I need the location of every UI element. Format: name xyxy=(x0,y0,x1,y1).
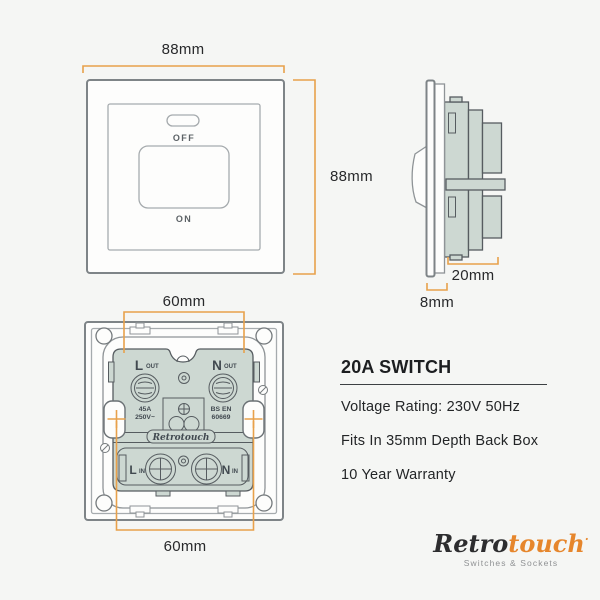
brand-wordmark: Retrotouch· xyxy=(431,527,591,557)
plate-depth-label: 8mm xyxy=(420,294,454,311)
standard-text: BS EN 60669 xyxy=(211,406,232,421)
brand-mark: · xyxy=(585,533,589,546)
svg-text:45A: 45A xyxy=(139,406,152,413)
diagram-canvas: OFF ON 88mm 88mm 20mm 8mm xyxy=(0,0,600,600)
svg-text:N: N xyxy=(222,463,231,477)
side-view: 20mm 8mm xyxy=(412,81,505,312)
width-dimension-bracket xyxy=(83,66,284,73)
front-width-label: 88mm xyxy=(162,41,205,58)
height-dimension-bracket xyxy=(293,80,315,274)
front-view: OFF ON 88mm 88mm xyxy=(83,41,373,274)
front-height-label: 88mm xyxy=(330,168,373,185)
back-top-width-label: 60mm xyxy=(163,293,206,310)
plate-depth-dimension-bracket xyxy=(427,283,447,290)
side-mechanism xyxy=(445,97,506,260)
svg-text:250V~: 250V~ xyxy=(135,414,155,421)
svg-text:IN: IN xyxy=(139,469,145,475)
off-label: OFF xyxy=(173,133,195,143)
svg-text:L: L xyxy=(129,463,136,477)
svg-text:IN: IN xyxy=(232,469,238,475)
on-label: ON xyxy=(176,214,192,224)
svg-text:Retrotouch: Retrotouch xyxy=(152,433,210,443)
svg-text:OUT: OUT xyxy=(146,364,159,370)
brand-stamp: Retrotouch xyxy=(147,430,215,443)
svg-text:N: N xyxy=(212,358,222,373)
svg-text:BS EN: BS EN xyxy=(211,406,232,413)
indicator-window xyxy=(167,115,199,126)
rocker-switch xyxy=(139,146,229,208)
depth-label: 20mm xyxy=(452,267,495,284)
back-view: L OUT N OUT 45A 250V~ BS EN 60669 xyxy=(85,293,283,555)
side-backplate xyxy=(435,84,445,273)
product-dimension-sheet: OFF ON 88mm 88mm 20mm 8mm xyxy=(0,0,600,600)
svg-text:60669: 60669 xyxy=(212,414,231,421)
brand-word-touch: touch xyxy=(508,529,585,558)
brand-word-retro: Retro xyxy=(433,529,508,558)
back-bottom-width-label: 60mm xyxy=(164,538,207,555)
title-rule xyxy=(340,384,547,385)
mounting-flange xyxy=(446,179,505,190)
spec-warranty: 10 Year Warranty xyxy=(341,467,456,483)
spec-voltage: Voltage Rating: 230V 50Hz xyxy=(341,399,520,415)
svg-text:L: L xyxy=(135,358,143,373)
spec-backbox: Fits In 35mm Depth Back Box xyxy=(341,433,538,449)
side-frontplate xyxy=(427,81,435,277)
side-rocker-lever xyxy=(412,146,427,208)
svg-text:OUT: OUT xyxy=(224,364,237,370)
brand-tagline: Switches & Sockets xyxy=(431,558,591,568)
brand-logo: Retrotouch· Switches & Sockets xyxy=(431,527,591,568)
product-title: 20A SWITCH xyxy=(341,357,451,378)
adjustable-lug-left xyxy=(104,401,126,438)
